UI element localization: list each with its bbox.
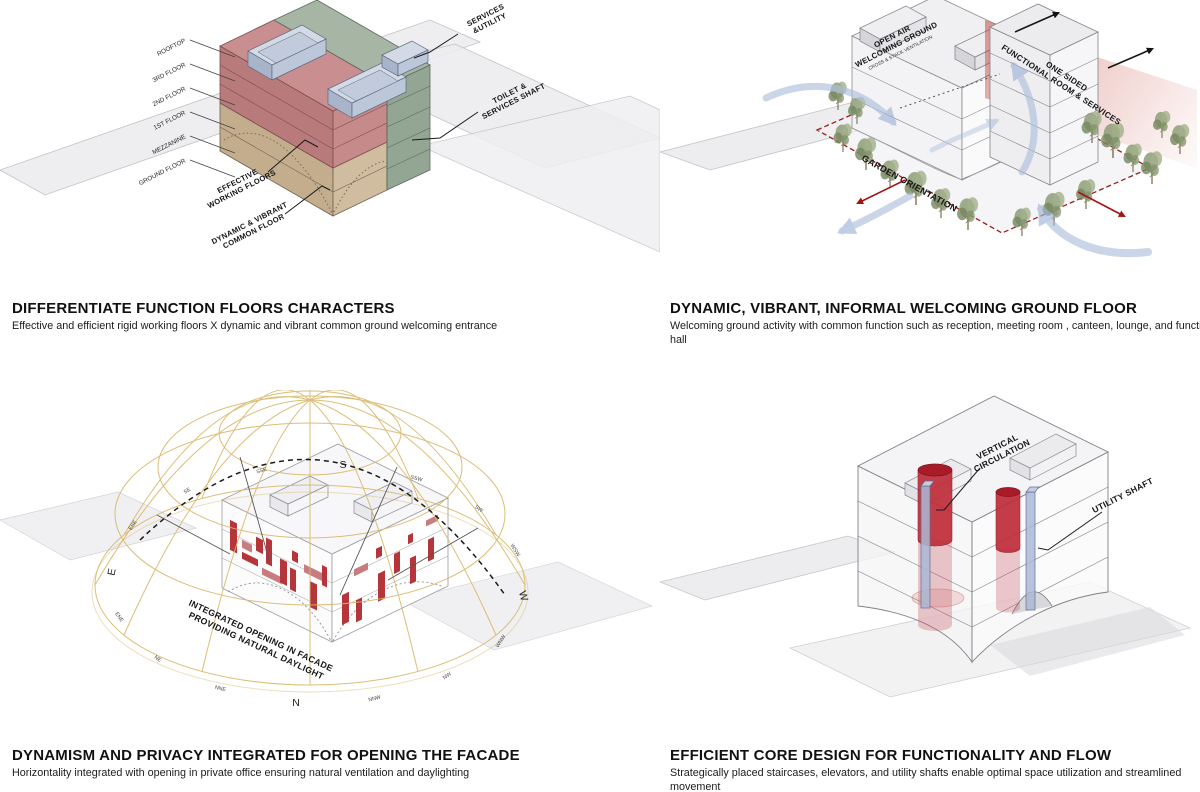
panel-subtitle: Strategically placed staircases, elevato…: [670, 766, 1200, 792]
floor-labels: ROOFTOP 3RD FLOOR 2ND FLOOR 1ST FLOOR ME…: [138, 38, 187, 188]
panel-subtitle: Welcoming ground activity with common fu…: [670, 319, 1200, 347]
bearing-label: NW: [442, 671, 453, 681]
panel-title: DYNAMIC, VIBRANT, INFORMAL WELCOMING GRO…: [670, 300, 1200, 317]
bearing-label: NE: [153, 655, 163, 664]
panel-title: DYNAMISM AND PRIVACY INTEGRATED FOR OPEN…: [12, 747, 557, 764]
floor-label: 3RD FLOOR: [152, 61, 188, 84]
panel-title: DIFFERENTIATE FUNCTION FLOORS CHARACTERS: [12, 300, 557, 317]
bearing-label: SE: [183, 486, 193, 495]
common-floor-label: DYNAMIC & VIBRANT COMMON FLOOR: [210, 200, 293, 254]
bearing-label: NNW: [368, 694, 382, 703]
diagram-sheet: ROOFTOP 3RD FLOOR 2ND FLOOR 1ST FLOOR ME…: [0, 0, 1200, 792]
panel-subtitle: Effective and efficient rigid working fl…: [12, 319, 557, 333]
ground-floor-diagram: OPEN AIR WELCOMING GROUND CROSS & STACK …: [660, 0, 1200, 295]
compass-south: S: [339, 459, 346, 471]
floor-label: 2ND FLOOR: [152, 85, 188, 108]
floor-label: GROUND FLOOR: [138, 157, 187, 187]
caption-floors: DIFFERENTIATE FUNCTION FLOORS CHARACTERS…: [12, 300, 557, 333]
panel-subtitle: Horizontality integrated with opening in…: [12, 766, 557, 780]
panel-title: EFFICIENT CORE DESIGN FOR FUNCTIONALITY …: [670, 747, 1200, 764]
caption-ground: DYNAMIC, VIBRANT, INFORMAL WELCOMING GRO…: [670, 300, 1200, 347]
facade-diagram: S N E W SSE SE ESE ENE NE NNE SSW SW WSW…: [0, 390, 660, 792]
caption-facade: DYNAMISM AND PRIVACY INTEGRATED FOR OPEN…: [12, 747, 557, 780]
caption-core: EFFICIENT CORE DESIGN FOR FUNCTIONALITY …: [670, 747, 1200, 792]
services-utility-label: SERVICES &UTILITY: [465, 2, 509, 37]
floor-label: ROOFTOP: [156, 38, 187, 58]
floors-diagram: ROOFTOP 3RD FLOOR 2ND FLOOR 1ST FLOOR ME…: [0, 0, 660, 295]
bearing-label: NNE: [214, 685, 227, 694]
sun-dome: [92, 390, 528, 692]
compass-east: E: [105, 567, 118, 576]
bearing-label: ENE: [113, 611, 124, 624]
compass-north: N: [292, 697, 300, 709]
bearing-label: WSW: [509, 543, 521, 558]
core-diagram: VERTICAL CIRCULATION UTILITY SHAFT: [660, 390, 1200, 792]
